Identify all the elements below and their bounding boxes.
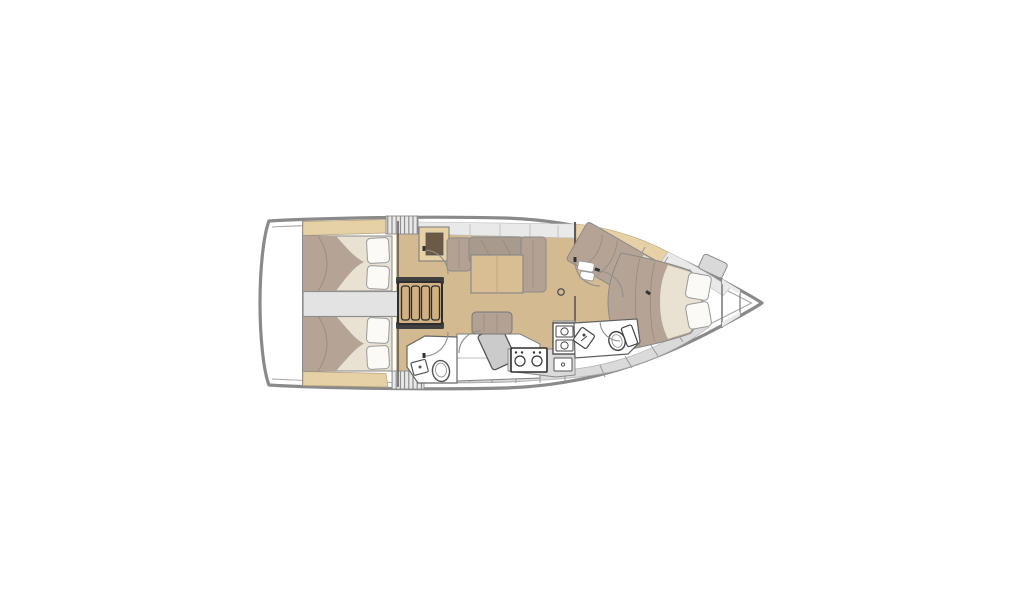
aft-stbd-pillow-2 — [366, 345, 389, 369]
floor-plan-canvas — [0, 0, 1024, 600]
aft-port-pillow-1 — [366, 237, 389, 263]
aft-port-pillow-2 — [366, 265, 389, 289]
aft-cabin-starboard — [303, 316, 392, 387]
burner-right — [532, 356, 542, 366]
wardrobe-inset — [426, 233, 443, 255]
burner-left — [515, 356, 525, 366]
companionway-steps — [396, 277, 444, 329]
galley-locker — [554, 358, 572, 371]
forward-head — [573, 319, 640, 358]
fwd-head-faucet — [583, 334, 586, 337]
aft-stbd-shelf-trim — [303, 372, 388, 388]
hatch-locker-top — [386, 216, 418, 234]
aft-cabin-port — [303, 220, 392, 292]
floor-plan-image — [0, 0, 1024, 600]
engine-corridor — [303, 292, 399, 317]
aft-port-shelf-trim — [303, 220, 388, 236]
aft-head-faucet — [419, 366, 422, 369]
settee-right-cushion — [521, 237, 546, 292]
v-berth-pillow-top — [685, 272, 712, 301]
compression-post — [558, 289, 564, 295]
v-berth-pillow-bottom — [685, 301, 712, 330]
aft-stbd-pillow-1 — [366, 317, 389, 343]
